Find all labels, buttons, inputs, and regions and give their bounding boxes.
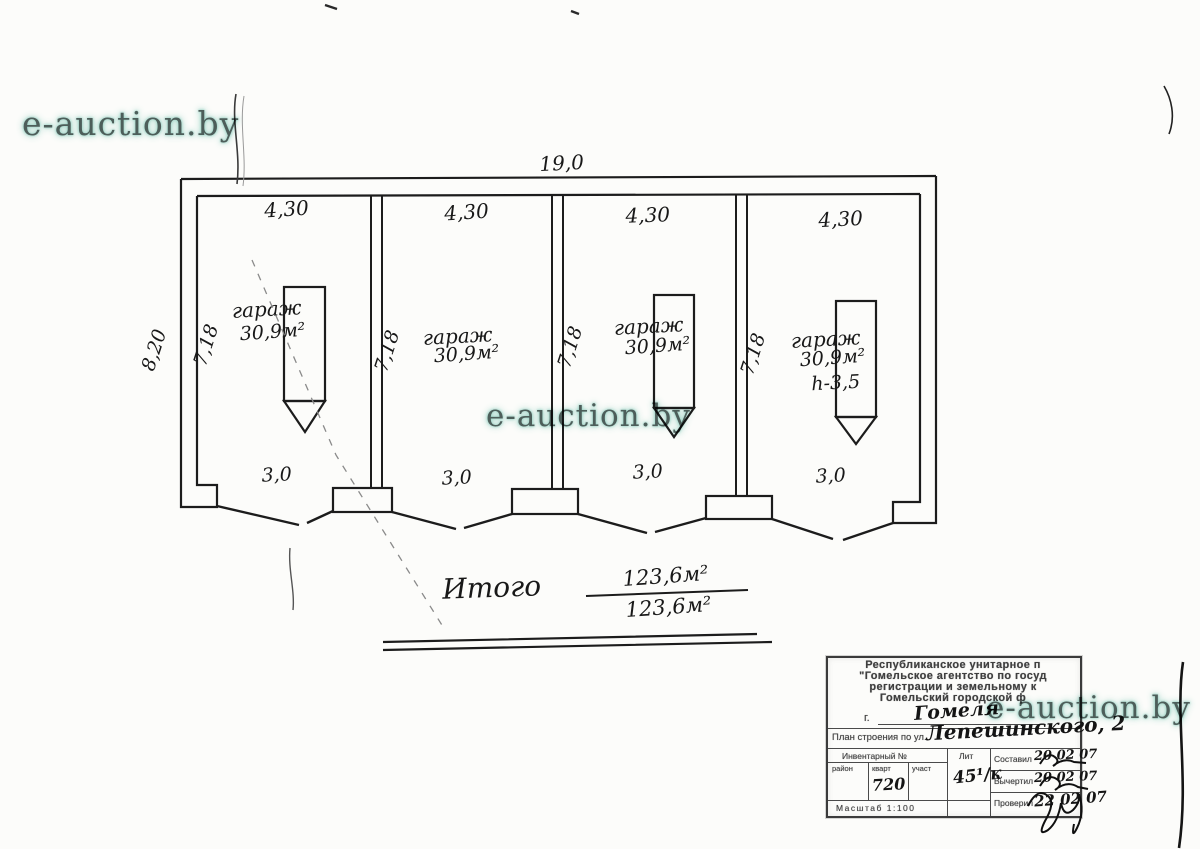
crease-line-faint — [242, 96, 244, 186]
col-border-1 — [947, 748, 948, 816]
dim-garage2-width: 4,30 — [442, 198, 489, 225]
col-rayon-label: район — [832, 764, 853, 773]
col-kvart-label: кварт — [872, 764, 891, 773]
proveril-date: 22 02 07 — [1033, 787, 1107, 810]
garage3-label: гараж — [613, 312, 684, 340]
dim-gate1-width: 3,0 — [261, 463, 292, 487]
dim-overall-depth: 8,20 — [137, 327, 171, 374]
double-underline — [383, 634, 772, 650]
pit-symbol-garage-4 — [836, 301, 876, 444]
dim-garage3-width: 4,30 — [624, 202, 671, 228]
dim-gate2-width: 3,0 — [441, 466, 472, 490]
pier-1 — [333, 488, 392, 512]
total-area-denominator: 123,6м² — [625, 592, 712, 622]
garage2-area: 30,9м² — [433, 341, 500, 368]
partition-wall-2 — [552, 195, 563, 489]
dim-garage2-depth: 7,18 — [370, 328, 404, 375]
pier-2 — [512, 489, 578, 514]
total-area-numerator: 123,6м² — [622, 561, 709, 591]
fraction-line — [586, 590, 748, 596]
subcol-border-2 — [908, 762, 909, 800]
dim-garage4-depth: 7,18 — [736, 331, 770, 378]
dimension-labels: 19,0 8,20 4,30 4,30 4,30 4,30 7,18 7,18 … — [137, 150, 863, 490]
garage4-area: 30,9м² — [799, 345, 866, 372]
city-prefix: г. — [864, 712, 870, 724]
subcol-border-1 — [868, 762, 869, 800]
partition-wall-1 — [371, 196, 382, 488]
dim-gate4-width: 3,0 — [815, 464, 846, 488]
sostavil-date: 20 02 07 — [1034, 747, 1098, 764]
right-wall-pier — [893, 176, 936, 523]
edge-speck — [325, 5, 579, 14]
scale-border — [828, 800, 990, 801]
gate-lines — [217, 506, 893, 540]
dim-gate3-width: 3,0 — [632, 460, 663, 484]
pier-3 — [706, 496, 772, 519]
partition-walls — [371, 195, 747, 496]
dim-garage1-depth: 7,18 — [189, 322, 223, 369]
scale-label: Масштаб 1:100 — [836, 803, 916, 813]
watermark-top-left: e-auction.by — [22, 104, 239, 143]
gate-lines-3 — [578, 514, 706, 533]
garage1-label: гараж — [231, 295, 302, 323]
dim-overall-width: 19,0 — [539, 150, 585, 176]
garage4-height: h-3,5 — [811, 371, 861, 396]
dim-garage3-depth: 7,18 — [553, 324, 587, 371]
watermark-center: e-auction.by — [486, 398, 691, 434]
piers — [333, 488, 772, 519]
gate-lines-1 — [217, 506, 333, 525]
fold-crease-dashed — [252, 260, 445, 630]
lit-label: Лит — [959, 751, 973, 761]
garage4-label: гараж — [790, 325, 861, 353]
total-label: Итого — [441, 569, 542, 605]
pit-symbol-garage-1 — [284, 287, 325, 432]
address-label: План строения по ул. — [832, 732, 927, 743]
sostavil-label: Составил — [994, 754, 1032, 764]
vychertil-date: 20 02 07 — [1034, 769, 1098, 786]
garage2-label: гараж — [422, 322, 493, 350]
col-uchast-label: участ — [912, 764, 931, 773]
title-block: Республиканское унитарное п "Гомельское … — [826, 656, 1082, 818]
crease-segment — [290, 548, 294, 610]
scanned-floor-plan-page: { "watermark": { "text": "e-auction.by" … — [0, 0, 1200, 849]
watermark-bottom-right: e-auction.by — [986, 690, 1191, 726]
kvart-value: 720 — [872, 774, 906, 795]
garage3-area: 30,9м² — [624, 333, 691, 360]
garage-labels: гараж 30,9м² гараж 30,9м² гараж 30,9м² г… — [231, 295, 866, 395]
partition-wall-3 — [736, 195, 747, 496]
left-wall-pier — [181, 179, 217, 507]
totals: Итого 123,6м² 123,6м² — [383, 561, 772, 650]
inventory-label: Инвентарный № — [842, 751, 907, 761]
hair-mark — [1164, 86, 1172, 134]
outer-walls — [181, 176, 936, 523]
dim-garage4-width: 4,30 — [817, 206, 864, 232]
garage1-area: 30,9м² — [239, 319, 306, 346]
dim-garage1-width: 4,30 — [262, 195, 309, 222]
subrow-border — [828, 762, 947, 763]
gate-lines-2 — [392, 512, 512, 529]
proveril-label: Проверил — [994, 798, 1033, 808]
gate-lines-4 — [772, 519, 893, 540]
